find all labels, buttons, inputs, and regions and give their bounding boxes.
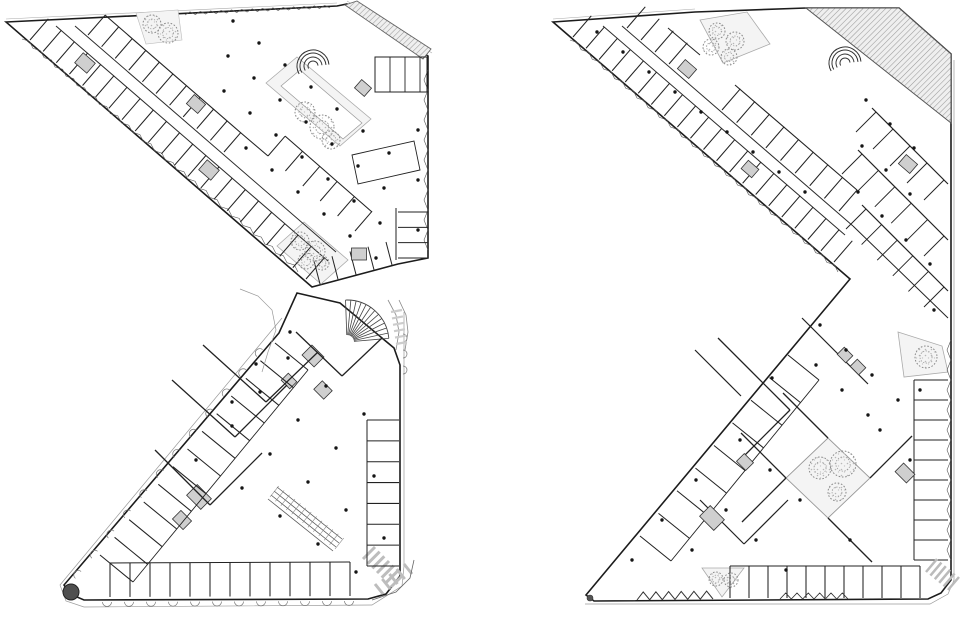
upper-wing-outline bbox=[6, 4, 428, 287]
floor-plans-svg bbox=[0, 0, 960, 617]
lower-triangle-outline bbox=[64, 293, 400, 600]
floor-plan-sheet bbox=[0, 0, 960, 617]
fan-stair bbox=[346, 300, 389, 341]
corner-turret bbox=[63, 584, 79, 600]
ramp-stripes bbox=[391, 310, 407, 344]
right-floor-plan bbox=[553, 7, 959, 604]
stair-core bbox=[352, 248, 367, 260]
interior-wall bbox=[695, 350, 741, 396]
tree-cluster bbox=[915, 346, 937, 368]
left-floor-plan bbox=[6, 1, 432, 607]
corner-point bbox=[587, 595, 593, 601]
